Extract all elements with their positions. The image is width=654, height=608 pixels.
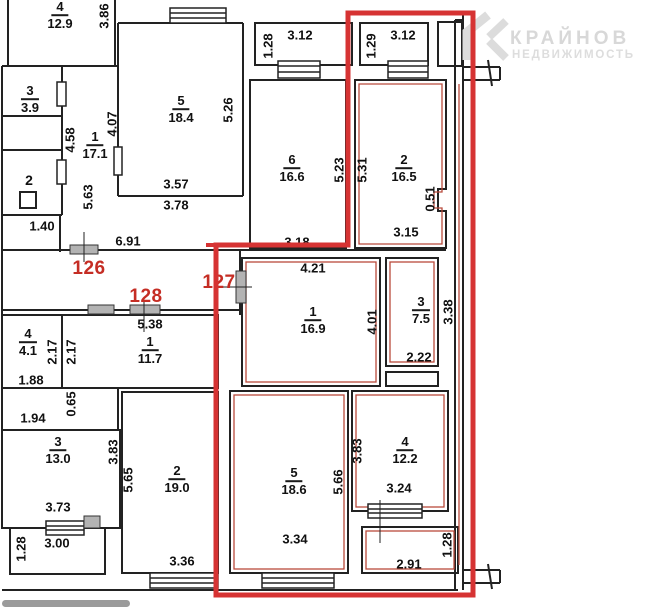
dim-label: 4.07: [105, 111, 120, 136]
dim-label: 5.31: [355, 157, 370, 182]
dim-label: 6.91: [115, 234, 140, 249]
room-label-2: 2: [25, 172, 33, 188]
dim-label: 5.66: [331, 469, 346, 494]
dim-label: 3.57: [163, 177, 188, 192]
dim-label: 3.73: [45, 500, 70, 515]
room-label-1-11-7: 111.7: [138, 335, 163, 367]
apartment-number-128: 128: [129, 286, 162, 308]
room-label-2-16-5: 216.5: [391, 153, 416, 185]
room-label-1-16-9: 116.9: [300, 305, 325, 337]
room-label-3-7-5: 37.5: [412, 295, 430, 327]
dim-label: 1.94: [20, 411, 45, 426]
dim-label: 1.28: [261, 33, 276, 58]
dim-label: 3.86: [97, 3, 112, 28]
dim-label: 2.17: [45, 339, 60, 364]
dim-label: 0.65: [64, 391, 79, 416]
room-label-4-12-9: 412.9: [47, 0, 72, 32]
label-layer: КРАЙНОВ НЕДВИЖИМОСТЬ 126 128 127 412.9 3…: [0, 0, 654, 608]
room-label-4-4-1: 44.1: [19, 327, 37, 359]
watermark-tagline: НЕДВИЖИМОСТЬ: [512, 49, 635, 61]
room-label-5-18-4: 518.4: [168, 94, 193, 126]
room-label-3-13-0: 313.0: [45, 435, 70, 467]
dim-label: 3.24: [386, 481, 411, 496]
dim-label: 3.38: [441, 299, 456, 324]
room-label-3-3-9: 33.9: [21, 84, 39, 116]
dim-label: 3.34: [282, 532, 307, 547]
dim-label: 1.28: [440, 532, 455, 557]
dim-label: 3.18: [284, 235, 309, 250]
dim-label: 1.88: [18, 373, 43, 388]
dim-label: 3.12: [390, 28, 415, 43]
horizontal-scrollbar-thumb[interactable]: [2, 600, 130, 607]
room-label-4-12-2: 412.2: [392, 435, 417, 467]
dim-label: 5.38: [137, 317, 162, 332]
watermark-brand: КРАЙНОВ: [510, 28, 630, 50]
dim-label: 4.21: [300, 261, 325, 276]
dim-label: 3.83: [106, 439, 121, 464]
apartment-number-126: 126: [72, 258, 105, 280]
dim-label: 5.26: [221, 97, 236, 122]
dim-label: 4.01: [365, 309, 380, 334]
dim-label: 2.17: [64, 339, 79, 364]
dim-label: 1.28: [14, 536, 29, 561]
dim-label: 3.15: [393, 225, 418, 240]
dim-label: 0.51: [423, 186, 438, 211]
dim-label: 3.00: [44, 536, 69, 551]
dim-label: 5.23: [332, 157, 347, 182]
dim-label: 5.63: [81, 184, 96, 209]
dim-label: 3.12: [287, 28, 312, 43]
dim-label: 4.58: [63, 127, 78, 152]
room-label-5-18-6: 518.6: [281, 466, 306, 498]
dim-label: 3.36: [169, 554, 194, 569]
dim-label: 2.91: [396, 557, 421, 572]
dim-label: 1.40: [29, 219, 54, 234]
dim-label: 3.83: [350, 438, 365, 463]
floor-plan: КРАЙНОВ НЕДВИЖИМОСТЬ 126 128 127 412.9 3…: [0, 0, 654, 608]
room-label-6-16-6: 616.6: [279, 153, 304, 185]
dim-label: 1.29: [364, 33, 379, 58]
dim-label: 5.65: [121, 467, 136, 492]
dim-label: 2.22: [406, 350, 431, 365]
room-label-2-19-0: 219.0: [164, 464, 189, 496]
dim-label: 3.78: [163, 198, 188, 213]
apartment-number-127: 127: [202, 272, 235, 294]
